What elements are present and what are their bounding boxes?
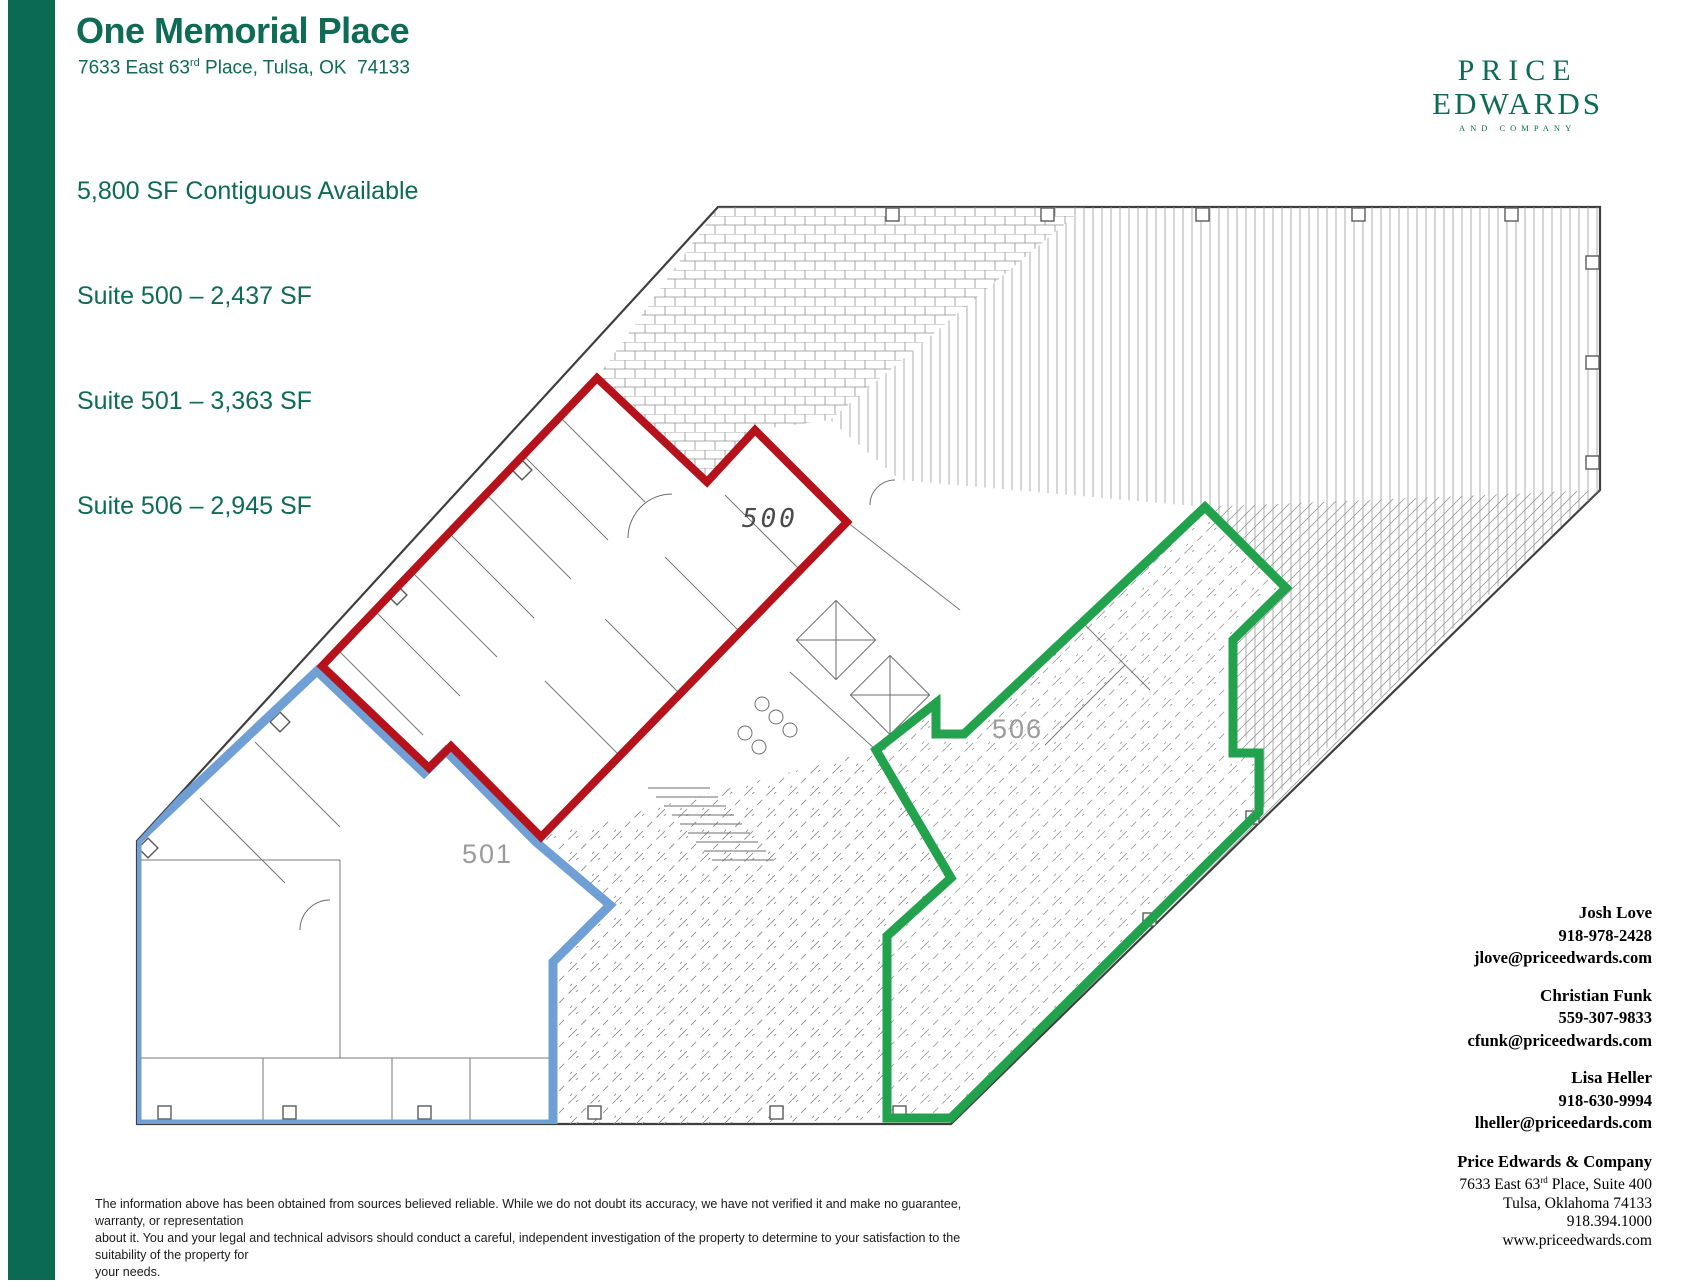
suite-500-label: 500 [742,504,798,534]
contact-lisa-heller: Lisa Heller 918-630-9994 lheller@priceed… [1457,1067,1652,1135]
company-name: Price Edwards & Company [1457,1153,1652,1172]
contact-name: Christian Funk [1457,985,1652,1008]
disclaimer-line-1: The information above has been obtained … [95,1196,963,1230]
disclaimer-line-2: about it. You and your legal and technic… [95,1230,963,1264]
disclaimer: The information above has been obtained … [95,1196,963,1281]
company-address-ordinal: rd [1540,1175,1548,1185]
contact-email: jlove@priceedwards.com [1457,947,1652,970]
disclaimer-line-3: your needs. [95,1264,963,1281]
broker-contacts: Josh Love 918-978-2428 jlove@priceedward… [1457,902,1652,1250]
contact-phone: 559-307-9833 [1457,1007,1652,1030]
company-phone: 918.394.1000 [1457,1213,1652,1232]
contact-name: Lisa Heller [1457,1067,1652,1090]
contact-email: cfunk@priceedwards.com [1457,1030,1652,1053]
contact-phone: 918-978-2428 [1457,925,1652,948]
company-address-suffix: Place, Suite 400 [1548,1176,1652,1193]
contact-email: lheller@priceedards.com [1457,1112,1652,1135]
company-address-prefix: 7633 East 63 [1459,1176,1540,1193]
company-website: www.priceedwards.com [1457,1232,1652,1251]
suite-506-label: 506 [992,714,1043,744]
contact-christian-funk: Christian Funk 559-307-9833 cfunk@pricee… [1457,985,1652,1053]
floor-plan: 500 501 506 [0,0,1707,1280]
contact-phone: 918-630-9994 [1457,1090,1652,1113]
company-address-line2: Tulsa, Oklahoma 74133 [1457,1195,1652,1214]
company-address-line1: 7633 East 63rd Place, Suite 400 [1457,1171,1652,1195]
contact-name: Josh Love [1457,902,1652,925]
contact-josh-love: Josh Love 918-978-2428 jlove@priceedward… [1457,902,1652,970]
suite-501-label: 501 [462,839,513,869]
company-info: Price Edwards & Company 7633 East 63rd P… [1457,1153,1652,1251]
